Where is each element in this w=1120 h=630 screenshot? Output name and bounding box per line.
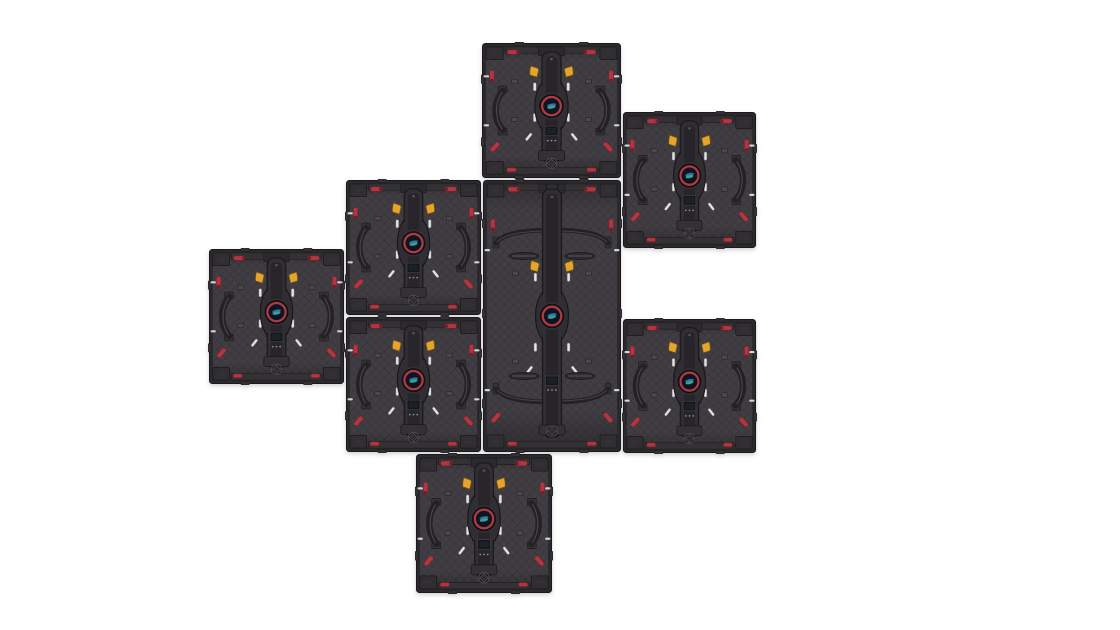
white-locator-pin xyxy=(534,343,537,352)
corner-foot xyxy=(350,321,367,334)
edge-pin xyxy=(474,261,479,263)
edge-pin xyxy=(749,351,754,353)
corner-foot xyxy=(627,437,643,450)
cabinet-mid-left xyxy=(345,179,482,316)
connector-block xyxy=(446,254,452,258)
rail-lens xyxy=(565,252,595,259)
status-screen xyxy=(683,196,696,205)
white-locator-pin xyxy=(672,152,675,160)
red-latch xyxy=(587,168,597,172)
corner-foot xyxy=(487,184,504,197)
corner-foot xyxy=(460,435,477,448)
corner-foot xyxy=(736,231,752,244)
edge-pin xyxy=(625,194,630,196)
status-dots xyxy=(272,346,281,348)
corner-foot xyxy=(350,184,367,197)
red-latch xyxy=(723,443,732,447)
connector-block xyxy=(722,187,728,191)
connector-block xyxy=(722,393,728,397)
cabinet-lower-left xyxy=(345,316,482,453)
cabinet-mid-right xyxy=(622,318,757,454)
hub-logo-badge xyxy=(677,369,702,394)
corner-foot xyxy=(420,458,437,471)
edge-pin xyxy=(211,281,216,283)
red-latch xyxy=(370,324,382,329)
corner-foot xyxy=(600,47,617,60)
edge-pin xyxy=(614,124,619,126)
connector-block xyxy=(375,391,381,395)
red-latch xyxy=(647,119,659,124)
edge-pin xyxy=(484,75,489,77)
corner-foot xyxy=(627,231,643,244)
red-latch xyxy=(448,305,457,309)
white-locator-pin xyxy=(567,83,570,91)
red-latch xyxy=(491,219,496,231)
white-locator-pin xyxy=(396,220,399,228)
red-latch xyxy=(332,276,337,288)
connector-block xyxy=(446,391,452,395)
white-locator-pin xyxy=(259,289,262,297)
status-screen xyxy=(546,376,559,386)
connector-block xyxy=(446,353,452,357)
red-latch xyxy=(233,256,245,261)
red-latch xyxy=(587,442,597,446)
edge-pin xyxy=(348,349,353,351)
connector-block xyxy=(513,271,519,276)
red-latch xyxy=(609,219,614,231)
corner-foot xyxy=(460,321,477,334)
connector-block xyxy=(651,355,657,359)
connector-block xyxy=(585,117,591,121)
red-latch xyxy=(744,346,748,357)
red-latch xyxy=(445,187,457,192)
corner-foot xyxy=(213,367,230,380)
corner-foot xyxy=(627,116,643,129)
edge-pin xyxy=(625,400,630,402)
hub-logo-badge xyxy=(677,163,702,189)
white-locator-pin xyxy=(672,358,675,366)
bottom-rail xyxy=(506,442,598,449)
edge-pin xyxy=(418,487,423,489)
edge-pin xyxy=(614,75,619,77)
rail-lens xyxy=(509,252,539,259)
red-latch xyxy=(720,326,732,330)
edge-pin xyxy=(348,212,353,214)
red-latch xyxy=(440,583,449,587)
connector-block xyxy=(517,491,523,496)
white-locator-pin xyxy=(567,343,570,352)
red-latch xyxy=(353,344,358,356)
red-latch xyxy=(490,70,495,82)
red-latch xyxy=(720,119,732,124)
white-locator-pin xyxy=(291,289,294,297)
connector-block xyxy=(309,323,315,327)
corner-foot xyxy=(736,437,752,450)
connector-block xyxy=(445,531,451,536)
corner-foot xyxy=(323,367,340,380)
connector-block xyxy=(446,216,452,220)
red-latch xyxy=(508,187,520,192)
edge-pin xyxy=(485,389,490,391)
corner-foot xyxy=(487,435,504,448)
edge-pin xyxy=(474,212,479,214)
red-latch xyxy=(519,583,528,587)
bottom-lock xyxy=(539,425,565,436)
rail-lens xyxy=(509,372,539,379)
edge-pin xyxy=(474,349,479,351)
status-dots xyxy=(409,414,418,416)
red-latch xyxy=(516,461,528,466)
red-latch xyxy=(540,482,545,494)
connector-block xyxy=(512,79,518,83)
status-screen xyxy=(478,540,491,550)
white-locator-pin xyxy=(499,495,502,504)
white-locator-pin xyxy=(567,273,570,282)
edge-pin xyxy=(614,389,619,391)
connector-block xyxy=(375,216,381,220)
connector-block xyxy=(445,491,451,496)
status-dots xyxy=(685,415,694,417)
edge-pin xyxy=(749,145,754,147)
red-latch xyxy=(233,374,242,378)
status-dots xyxy=(547,140,556,142)
corner-foot xyxy=(213,253,230,266)
cabinet-upper-right xyxy=(622,111,757,249)
corner-foot xyxy=(420,576,437,589)
status-screen xyxy=(545,126,558,135)
hub-logo-badge xyxy=(471,506,497,532)
status-screen xyxy=(407,400,420,409)
white-locator-pin xyxy=(534,273,537,282)
cabinet-top-center xyxy=(481,42,622,179)
hub-logo-badge xyxy=(539,303,565,329)
white-locator-pin xyxy=(533,83,536,91)
edge-pin xyxy=(749,400,754,402)
red-latch xyxy=(508,442,518,446)
edge-pin xyxy=(337,281,342,283)
red-latch xyxy=(647,238,656,242)
cabinet-center-tall xyxy=(482,179,622,453)
connector-block xyxy=(651,148,657,152)
red-latch xyxy=(647,326,659,330)
hub-logo-badge xyxy=(401,230,426,255)
status-screen xyxy=(407,263,420,272)
red-latch xyxy=(216,276,221,288)
red-latch xyxy=(609,70,614,82)
red-latch xyxy=(630,140,634,152)
corner-foot xyxy=(531,576,548,589)
red-latch xyxy=(469,207,474,219)
led-cabinet-rear-square xyxy=(208,248,345,385)
red-latch xyxy=(723,238,732,242)
led-cabinet-rear-square xyxy=(415,453,553,594)
edge-pin xyxy=(211,330,216,332)
edge-pin xyxy=(418,538,423,540)
red-latch xyxy=(370,305,379,309)
connector-block xyxy=(586,271,592,276)
status-dots xyxy=(547,389,556,391)
hub-logo-badge xyxy=(538,93,564,118)
status-screen xyxy=(270,332,283,341)
corner-foot xyxy=(600,161,617,174)
corner-foot xyxy=(486,47,503,60)
edge-pin xyxy=(625,145,630,147)
white-locator-pin xyxy=(428,220,431,228)
red-latch xyxy=(370,442,379,446)
red-latch xyxy=(445,324,457,329)
white-locator-pin xyxy=(396,357,399,365)
edge-pin xyxy=(337,330,342,332)
corner-foot xyxy=(600,184,617,197)
connector-block xyxy=(375,353,381,357)
red-latch xyxy=(423,482,428,494)
cabinet-far-left xyxy=(208,248,345,385)
red-latch xyxy=(584,50,596,55)
cabinet-bottom xyxy=(415,453,553,594)
corner-foot xyxy=(736,323,752,336)
corner-foot xyxy=(736,116,752,129)
led-cabinet-rear-square xyxy=(622,318,757,454)
connector-block xyxy=(309,285,315,289)
edge-pin xyxy=(474,398,479,400)
connector-block xyxy=(375,254,381,258)
red-latch xyxy=(647,443,656,447)
edge-pin xyxy=(545,538,550,540)
edge-pin xyxy=(625,351,630,353)
red-latch xyxy=(308,256,320,261)
corner-foot xyxy=(531,458,548,471)
red-latch xyxy=(630,346,634,357)
led-cabinet-rear-tall xyxy=(482,179,622,453)
connector-block xyxy=(722,355,728,359)
rail-lens xyxy=(565,372,595,379)
red-latch xyxy=(441,461,453,466)
white-locator-pin xyxy=(704,358,707,366)
connector-block xyxy=(585,79,591,83)
corner-foot xyxy=(627,323,643,336)
red-latch xyxy=(448,442,457,446)
edge-pin xyxy=(545,487,550,489)
corner-foot xyxy=(350,435,367,448)
connector-block xyxy=(238,323,244,327)
edge-pin xyxy=(348,261,353,263)
status-screen xyxy=(683,402,696,411)
red-latch xyxy=(584,187,596,192)
hub-logo-badge xyxy=(264,299,289,324)
corner-foot xyxy=(460,184,477,197)
connector-block xyxy=(513,359,519,364)
corner-foot xyxy=(460,298,477,311)
corner-foot xyxy=(350,298,367,311)
white-locator-pin xyxy=(704,152,707,160)
connector-block xyxy=(586,359,592,364)
edge-pin xyxy=(485,249,490,251)
connector-block xyxy=(651,187,657,191)
status-dots xyxy=(409,277,418,279)
status-dots xyxy=(685,209,694,211)
edge-pin xyxy=(484,124,489,126)
led-wall-product-stage xyxy=(0,0,1120,630)
status-dots xyxy=(479,554,488,556)
led-cabinet-rear-square xyxy=(345,316,482,453)
red-latch xyxy=(744,140,748,152)
edge-pin xyxy=(749,194,754,196)
white-locator-pin xyxy=(466,495,469,504)
edge-pin xyxy=(614,249,619,251)
white-locator-pin xyxy=(428,357,431,365)
hub-logo-badge xyxy=(401,367,426,392)
corner-foot xyxy=(323,253,340,266)
red-latch xyxy=(507,168,517,172)
red-latch xyxy=(311,374,320,378)
edge-pin xyxy=(348,398,353,400)
led-cabinet-rear-square xyxy=(622,111,757,249)
connector-block xyxy=(722,148,728,152)
connector-block xyxy=(238,285,244,289)
corner-foot xyxy=(486,161,503,174)
led-cabinet-rear-square xyxy=(345,179,482,316)
connector-block xyxy=(517,531,523,536)
red-latch xyxy=(469,344,474,356)
connector-block xyxy=(512,117,518,121)
red-latch xyxy=(353,207,358,219)
corner-foot xyxy=(600,435,617,448)
red-latch xyxy=(370,187,382,192)
red-latch xyxy=(507,50,519,55)
led-cabinet-rear-square xyxy=(481,42,622,179)
connector-block xyxy=(651,393,657,397)
